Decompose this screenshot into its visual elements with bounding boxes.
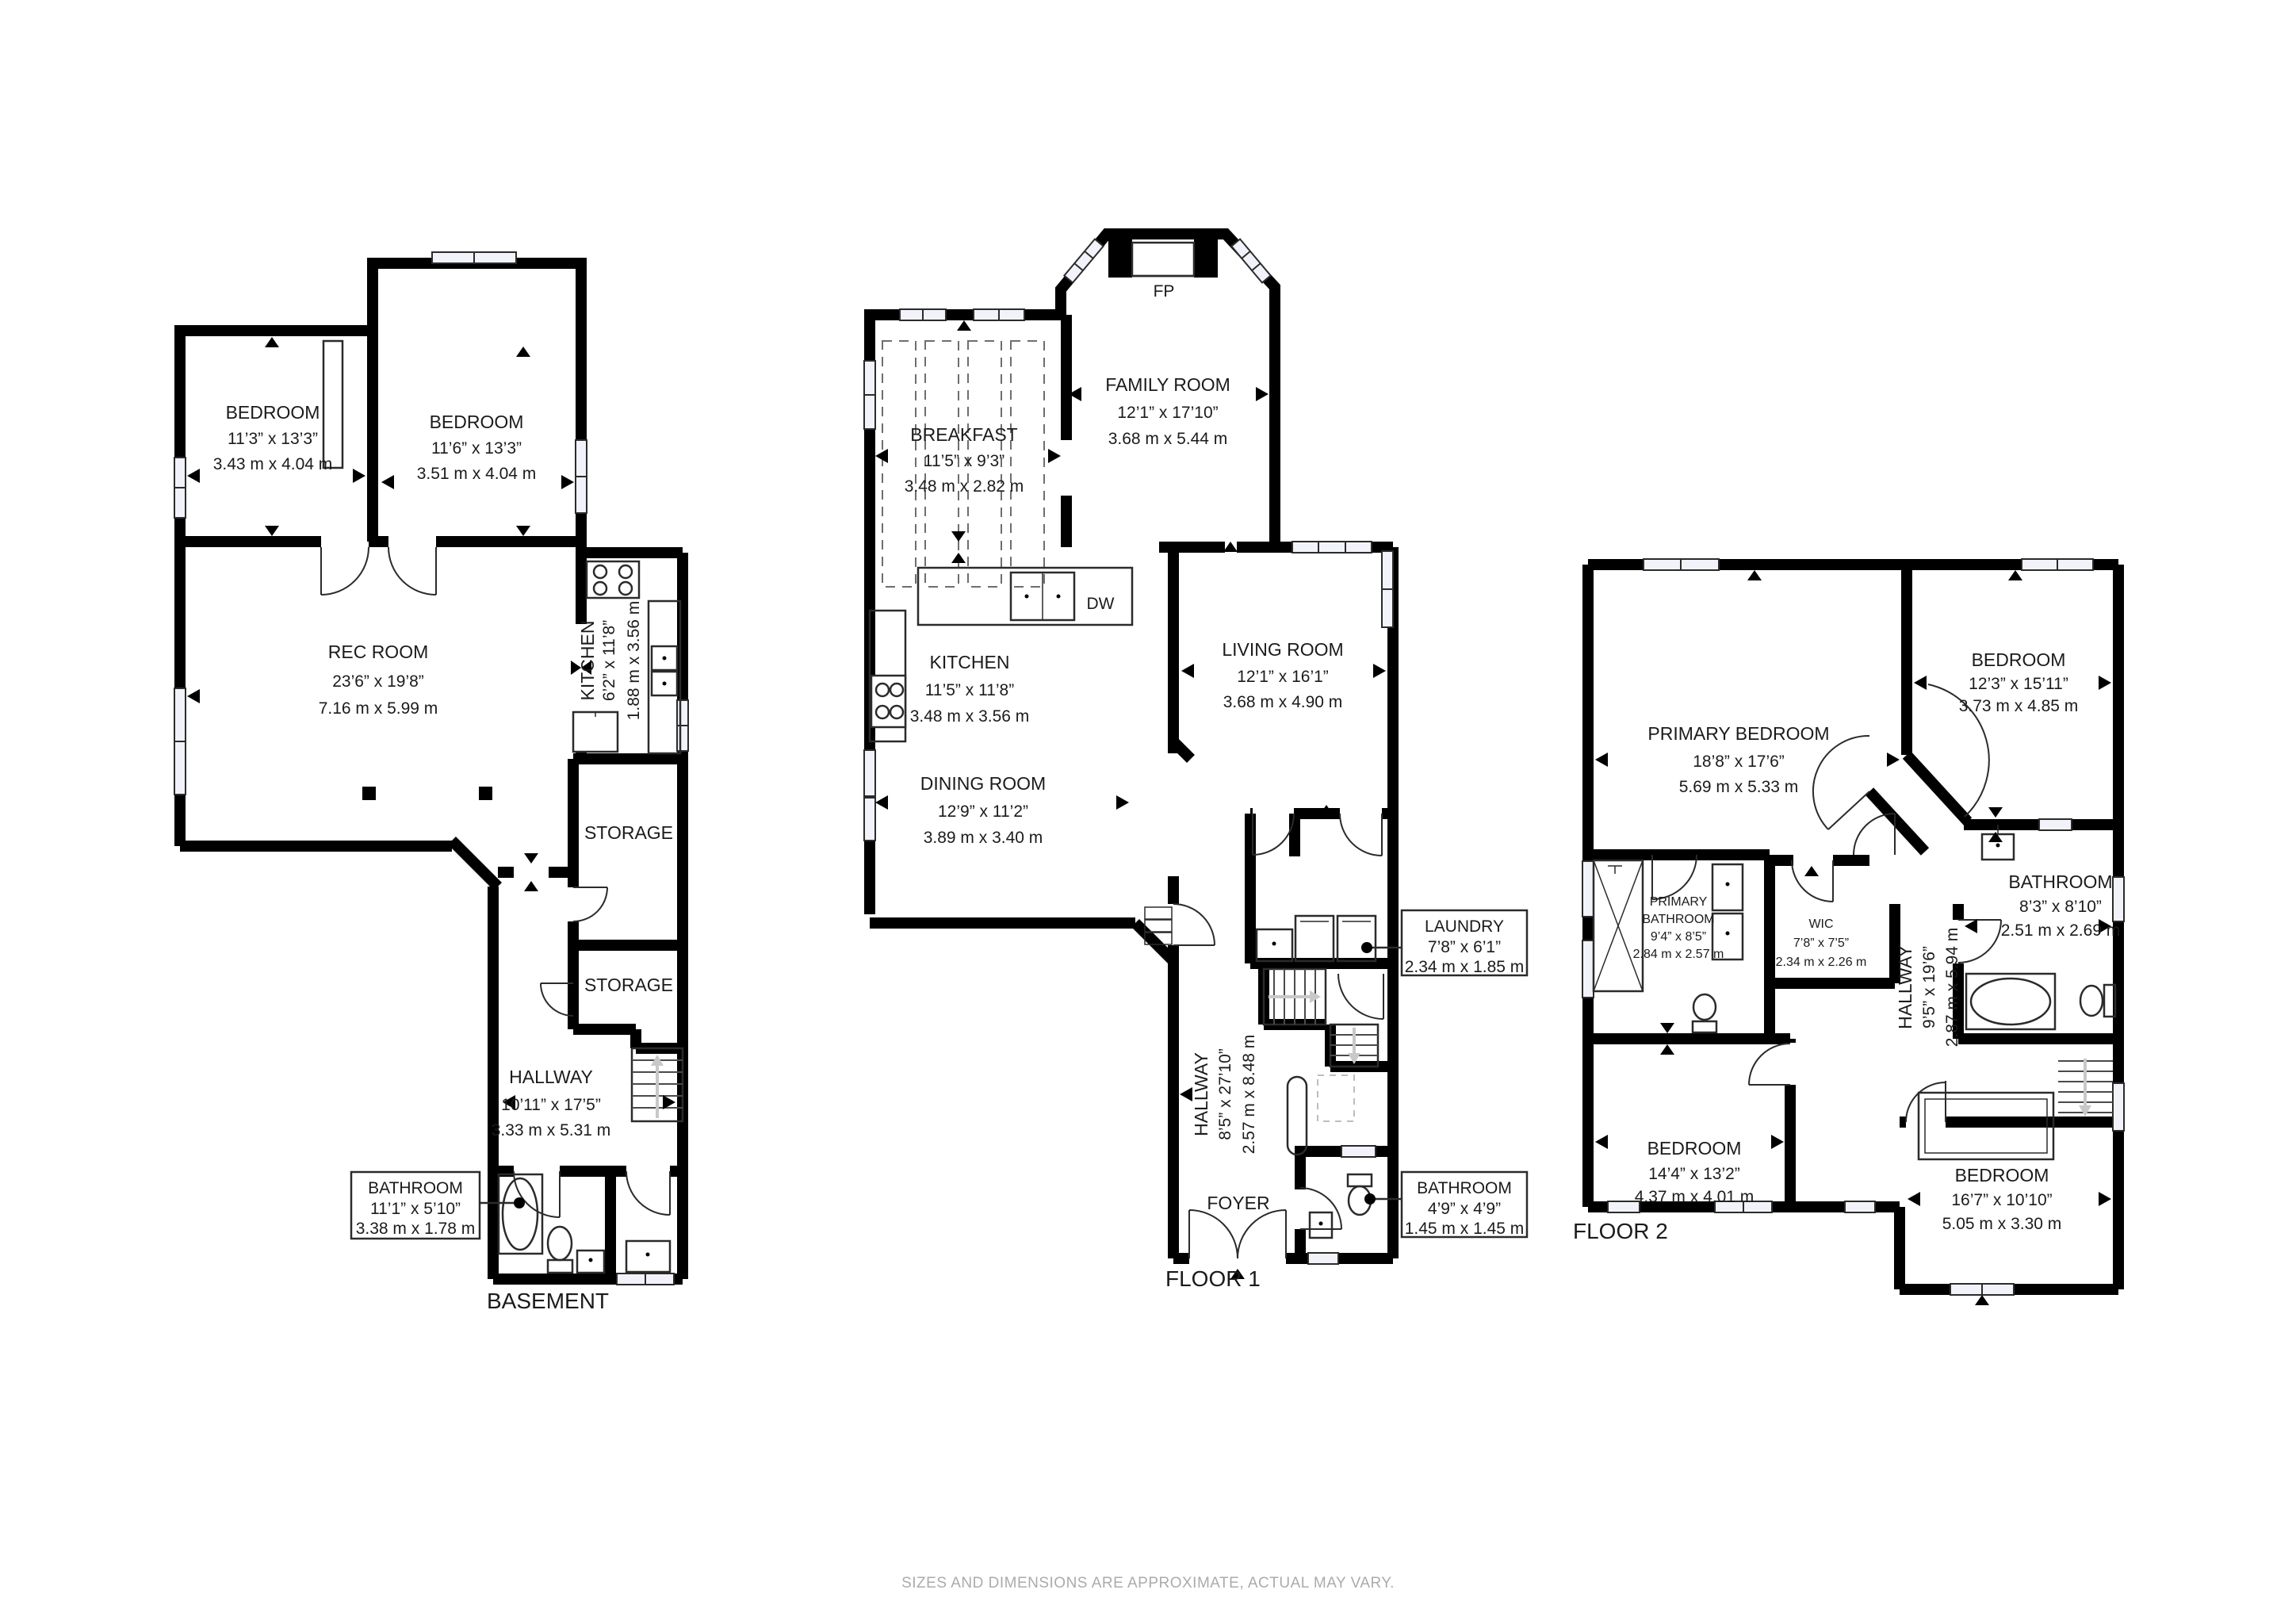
plan-title-floor1: FLOOR 1 xyxy=(1165,1266,1261,1291)
stairs xyxy=(632,1048,683,1121)
room-label: 2.87 m x 5.94 m xyxy=(1943,928,1961,1048)
room-label: 11’5” x 9’3” xyxy=(924,452,1004,470)
callout-label: 11’1” x 5’10” xyxy=(370,1200,461,1218)
room-label: 11’6” x 13’3” xyxy=(431,439,522,458)
room-label: BEDROOM xyxy=(1647,1138,1742,1159)
callout-label: 2.34 m x 1.85 m xyxy=(1405,958,1525,976)
room-label: 12’1” x 16’1” xyxy=(1237,668,1329,686)
floorplan-page: BEDROOM 11’3” x 13’3” 3.43 m x 4.04 m BE… xyxy=(0,0,2296,1624)
room-label: 2.84 m x 2.57 m xyxy=(1633,948,1724,961)
stairs-up xyxy=(1264,969,1326,1025)
room-label: 10’11” x 17’5” xyxy=(501,1096,601,1114)
columns xyxy=(362,787,492,800)
room-label: 4.37 m x 4.01 m xyxy=(1635,1188,1755,1206)
closet xyxy=(323,341,342,468)
callout-label: 7’8” x 6’1” xyxy=(1428,938,1501,956)
callout-label: 3.38 m x 1.78 m xyxy=(356,1220,476,1238)
room-label: 3.89 m x 3.40 m xyxy=(924,829,1043,847)
room-label: 9’5” x 19’6” xyxy=(1920,946,1938,1028)
room-label: 6’2” x 11’8” xyxy=(600,620,618,701)
room-label: LIVING ROOM xyxy=(1222,639,1343,660)
room-label: 18’8” x 17’6” xyxy=(1693,753,1785,771)
room-label: 2.34 m x 2.26 m xyxy=(1776,956,1867,969)
room-label: 2.51 m x 2.69 m xyxy=(2001,921,2121,940)
room-label: KITCHEN xyxy=(577,621,598,701)
room-label: 8’3” x 8’10” xyxy=(2019,898,2102,916)
floorplan-canvas: BEDROOM 11’3” x 13’3” 3.43 m x 4.04 m BE… xyxy=(0,0,2296,1624)
room-label: 8’5” x 27’10” xyxy=(1216,1048,1234,1140)
callout-label: LAUNDRY xyxy=(1425,917,1504,936)
room-label: 3.68 m x 4.90 m xyxy=(1223,693,1343,711)
room-label: 3.51 m x 4.04 m xyxy=(417,465,537,483)
room-label: 14’4” x 13’2” xyxy=(1648,1165,1740,1183)
room-label: BEDROOM xyxy=(1972,649,2066,670)
plan-floor1: BREAKFAST 11’5” x 9’3” 3.48 m x 2.82 m F… xyxy=(864,234,1527,1291)
plan-basement: BEDROOM 11’3” x 13’3” 3.43 m x 4.04 m BE… xyxy=(174,252,688,1313)
plan-floor2: PRIMARY BEDROOM 18’8” x 17’6” 5.69 m x 5… xyxy=(1573,559,2124,1305)
callout-label: 4’9” x 4’9” xyxy=(1428,1200,1501,1218)
room-label: 3.48 m x 3.56 m xyxy=(910,707,1030,726)
bathroom-fixtures xyxy=(499,1174,670,1273)
room-label: HALLWAY xyxy=(509,1067,593,1087)
room-label: 23’6” x 19’8” xyxy=(332,672,424,691)
room-label: BEDROOM xyxy=(1955,1165,2049,1185)
room-label: WIC xyxy=(1808,917,1833,931)
callout-label: 1.45 m x 1.45 m xyxy=(1405,1220,1525,1238)
room-label: FOYER xyxy=(1207,1193,1269,1213)
laundry-fixtures xyxy=(1257,916,1376,961)
room-label: 12’3” x 15’11” xyxy=(1969,675,2068,693)
room-label: 7’8” x 7’5” xyxy=(1793,936,1849,950)
plan-title-basement: BASEMENT xyxy=(487,1289,609,1313)
stairwell xyxy=(1919,1059,2113,1159)
room-label: 3.48 m x 2.82 m xyxy=(905,477,1024,496)
room-label: 5.05 m x 3.30 m xyxy=(1942,1215,2062,1233)
room-label: 1.88 m x 3.56 m xyxy=(625,601,643,721)
room-label: HALLWAY xyxy=(1191,1052,1211,1136)
room-label: 3.43 m x 4.04 m xyxy=(213,455,333,473)
room-label: DINING ROOM xyxy=(920,773,1046,794)
fireplace xyxy=(1108,236,1218,278)
room-label: 16’7” x 10’10” xyxy=(1951,1191,2052,1209)
room-label: 7.16 m x 5.99 m xyxy=(319,699,438,718)
room-label: PRIMARY BEDROOM xyxy=(1647,723,1829,744)
room-label: PRIMARY xyxy=(1650,895,1708,909)
room-label: 12’9” x 11’2” xyxy=(938,802,1028,821)
room-label: BREAKFAST xyxy=(910,424,1017,445)
closet xyxy=(1288,1077,1307,1155)
room-label: KITCHEN xyxy=(930,652,1010,672)
room-label: 5.69 m x 5.33 m xyxy=(1679,778,1799,796)
room-label: 2.57 m x 8.48 m xyxy=(1240,1035,1258,1155)
room-label: STORAGE xyxy=(584,975,673,995)
plan-title-floor2: FLOOR 2 xyxy=(1573,1219,1668,1243)
footer-disclaimer: SIZES AND DIMENSIONS ARE APPROXIMATE, AC… xyxy=(901,1575,1395,1591)
room-label: 11’3” x 13’3” xyxy=(228,430,318,448)
callout-label: BATHROOM xyxy=(368,1179,463,1197)
room-label: 12’1” x 17’10” xyxy=(1117,404,1218,422)
fireplace-label: FP xyxy=(1154,282,1175,301)
room-label: FAMILY ROOM xyxy=(1105,374,1230,395)
room-label: 9’4” x 8’5” xyxy=(1651,930,1706,944)
room-label: 11’5” x 11’8” xyxy=(925,681,1014,699)
room-label: REC ROOM xyxy=(328,642,429,662)
primary-bathroom-fixtures xyxy=(1594,860,1743,1032)
room-label: STORAGE xyxy=(584,822,673,843)
room-label: 3.33 m x 5.31 m xyxy=(492,1121,611,1139)
room-label: BEDROOM xyxy=(226,402,320,423)
room-label: BATHROOM xyxy=(2008,871,2112,892)
room-label: 3.68 m x 5.44 m xyxy=(1108,430,1228,448)
room-label: 3.73 m x 4.85 m xyxy=(1959,697,2079,715)
dishwasher-label: DW xyxy=(1087,595,1115,613)
room-label: BATHROOM xyxy=(1642,913,1714,926)
callout-label: BATHROOM xyxy=(1417,1179,1512,1197)
room-label: BEDROOM xyxy=(430,412,524,432)
room-label: HALLWAY xyxy=(1895,945,1915,1029)
